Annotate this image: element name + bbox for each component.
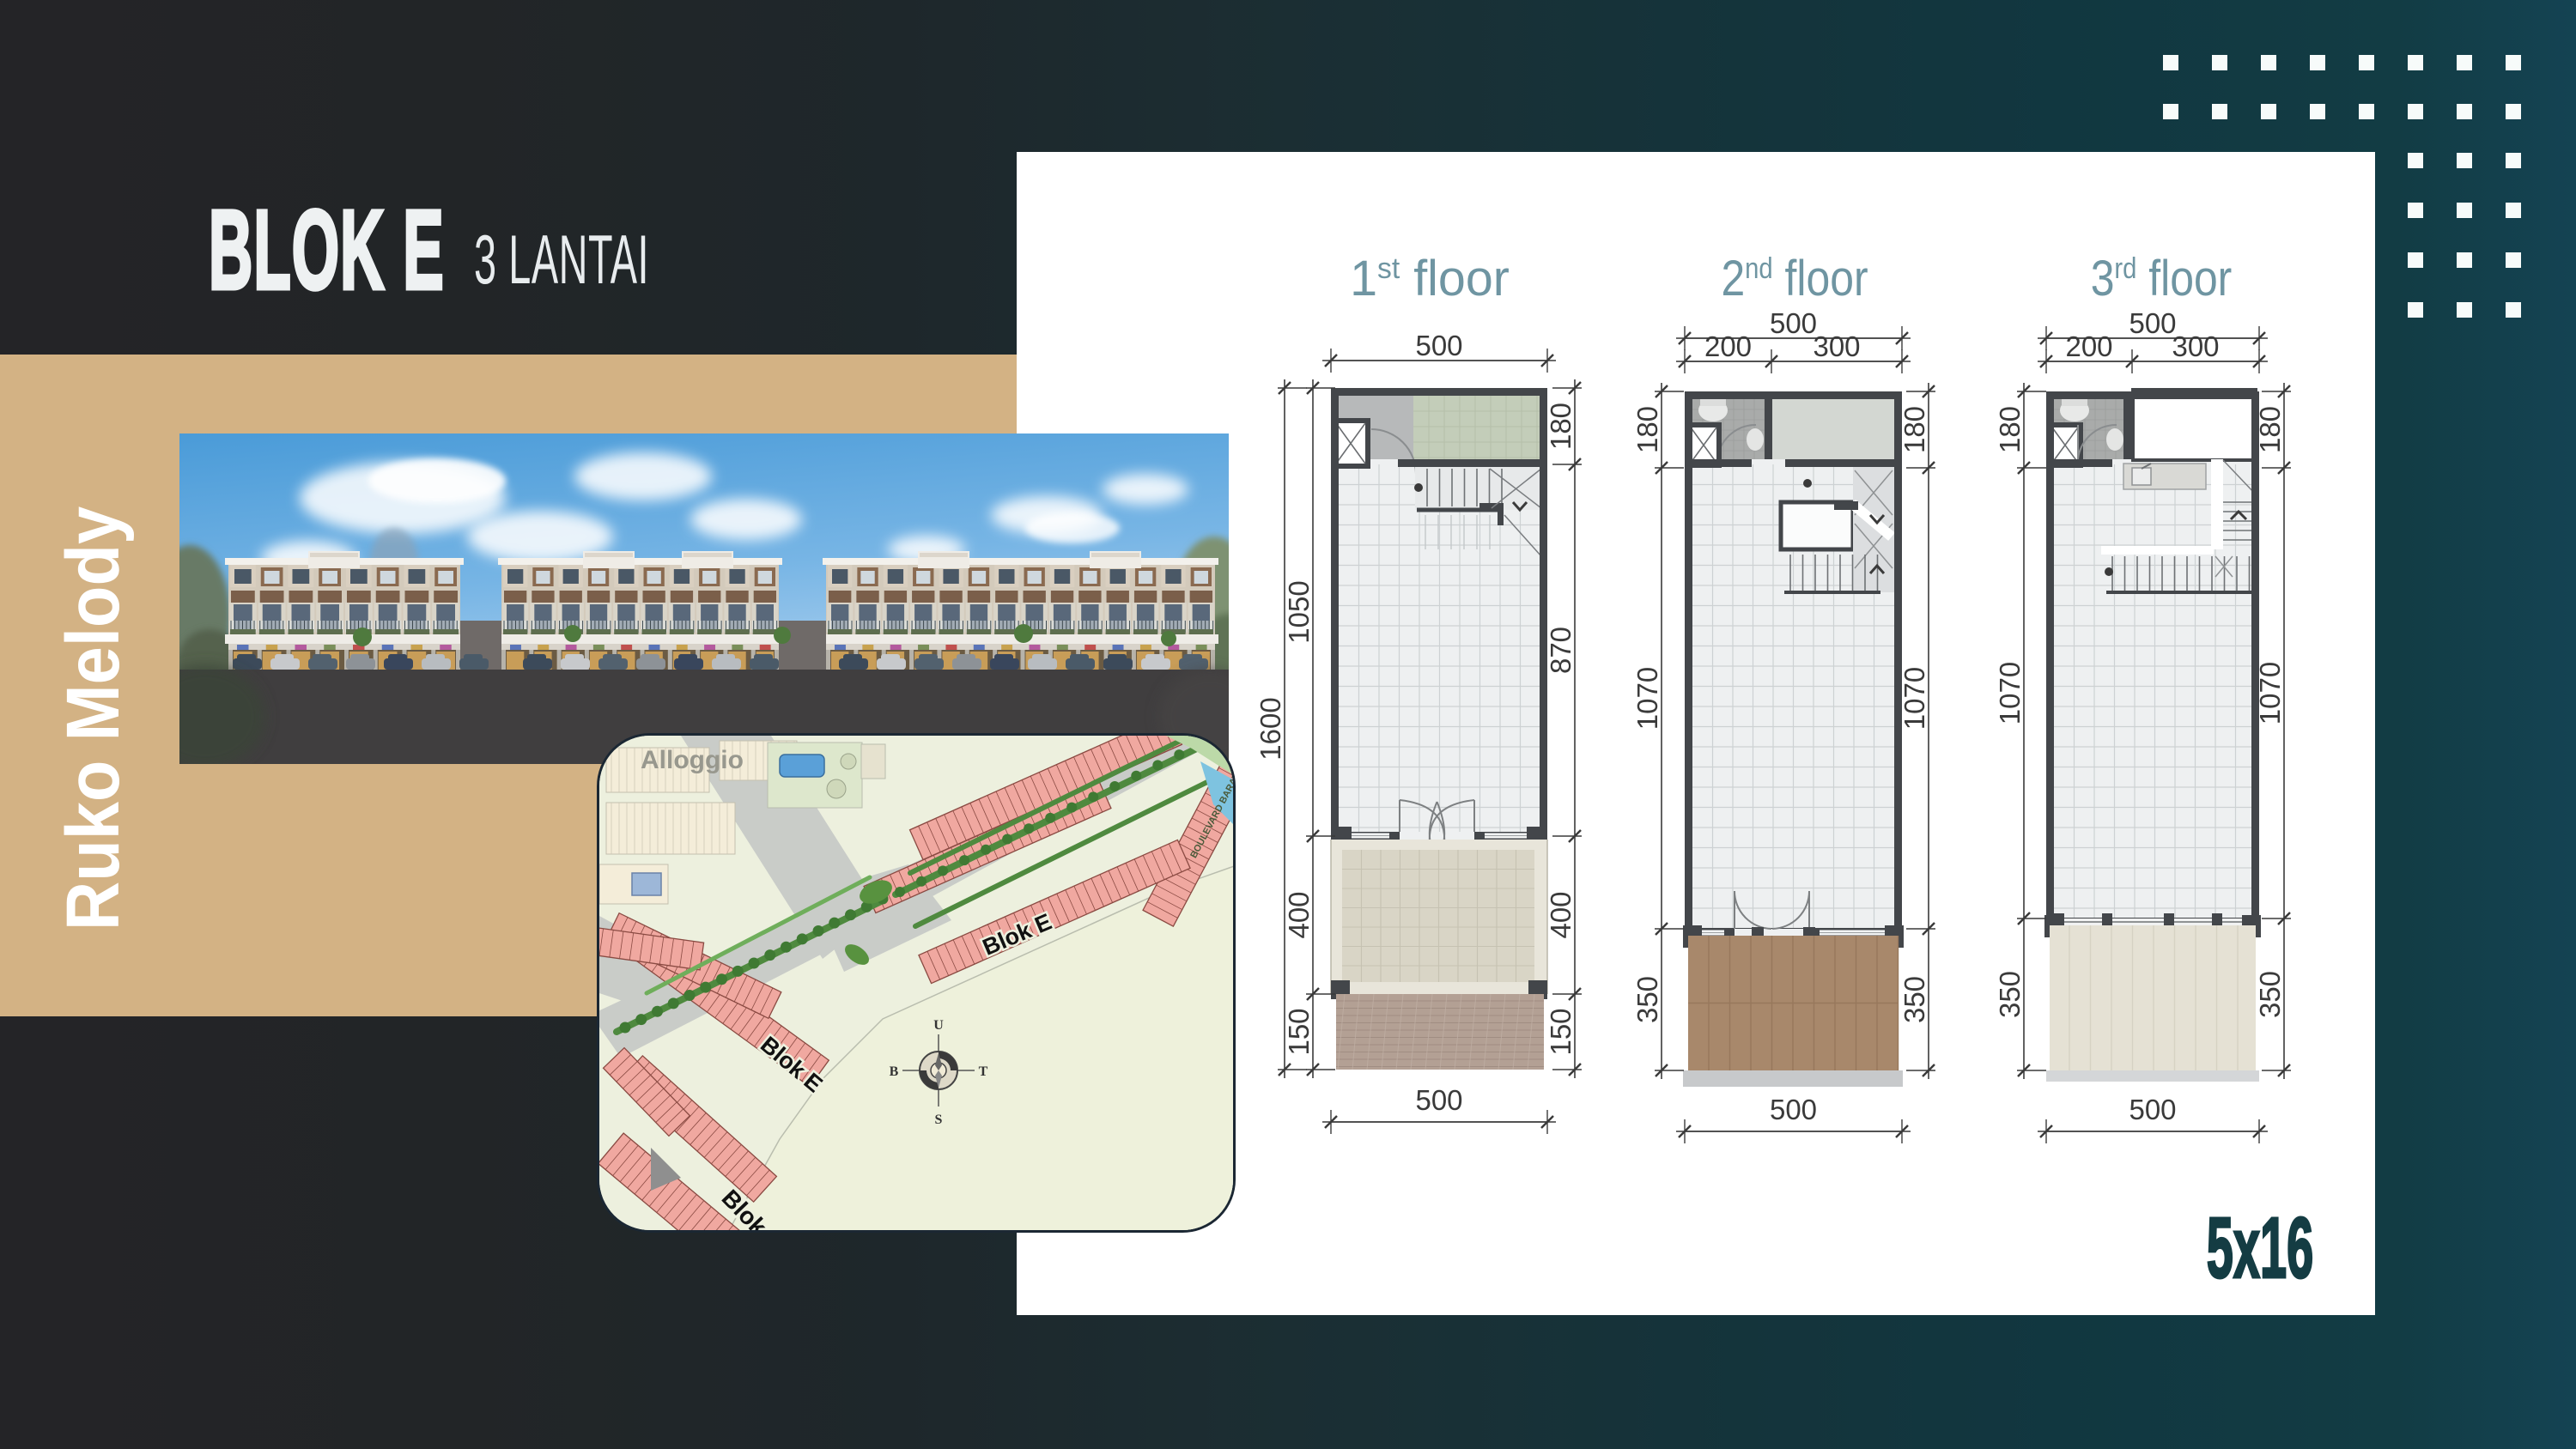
svg-text:1070: 1070: [2254, 662, 2286, 724]
svg-text:400: 400: [1545, 891, 1577, 938]
svg-text:350: 350: [2254, 971, 2286, 1018]
svg-text:500: 500: [1415, 1084, 1462, 1116]
svg-text:1050: 1050: [1283, 580, 1315, 643]
svg-text:180: 180: [2254, 406, 2286, 453]
svg-text:200: 200: [2065, 330, 2112, 362]
svg-text:2nd floor: 2nd floor: [1721, 252, 1868, 306]
svg-text:350: 350: [1994, 971, 2026, 1018]
svg-text:180: 180: [1899, 406, 1930, 453]
svg-text:150: 150: [1283, 1008, 1315, 1055]
svg-text:180: 180: [1631, 406, 1663, 453]
svg-text:500: 500: [1770, 307, 1817, 339]
svg-text:1600: 1600: [1255, 697, 1286, 760]
svg-text:400: 400: [1283, 891, 1315, 938]
svg-text:1070: 1070: [1631, 667, 1663, 730]
svg-text:3rd floor: 3rd floor: [2091, 252, 2233, 306]
svg-text:1070: 1070: [1899, 667, 1930, 730]
svg-text:1st floor: 1st floor: [1350, 252, 1510, 306]
svg-text:5x16: 5x16: [2207, 1201, 2314, 1296]
svg-text:870: 870: [1545, 627, 1577, 674]
svg-text:180: 180: [1545, 403, 1577, 450]
svg-text:180: 180: [1994, 406, 2026, 453]
svg-text:350: 350: [1631, 976, 1663, 1023]
svg-text:1070: 1070: [1994, 662, 2026, 724]
svg-text:150: 150: [1545, 1008, 1577, 1055]
svg-text:500: 500: [1770, 1094, 1817, 1125]
svg-text:300: 300: [1813, 330, 1860, 362]
svg-text:200: 200: [1704, 330, 1752, 362]
svg-text:500: 500: [2129, 307, 2176, 339]
svg-text:300: 300: [2172, 330, 2219, 362]
svg-text:500: 500: [2129, 1094, 2176, 1125]
svg-text:500: 500: [1415, 330, 1462, 361]
svg-text:350: 350: [1899, 976, 1930, 1023]
